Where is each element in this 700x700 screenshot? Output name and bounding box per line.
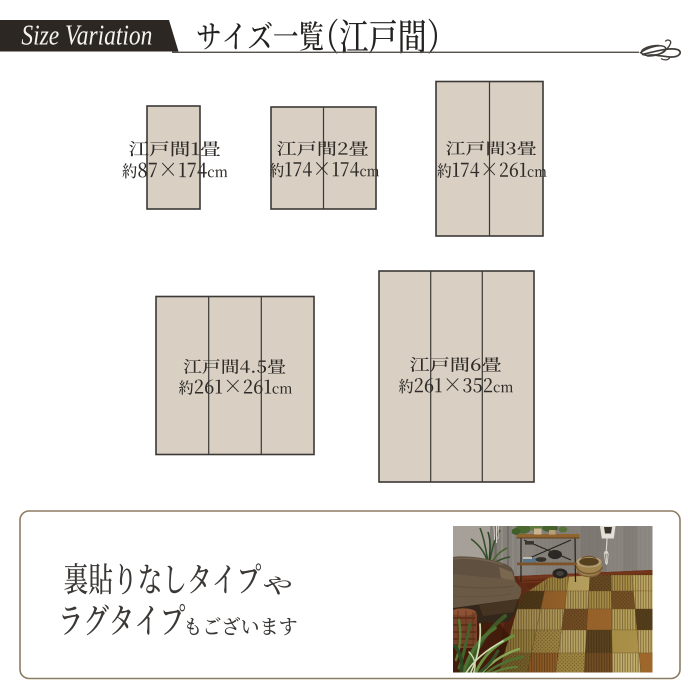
svg-text:Size Variation: Size Variation xyxy=(21,21,152,52)
